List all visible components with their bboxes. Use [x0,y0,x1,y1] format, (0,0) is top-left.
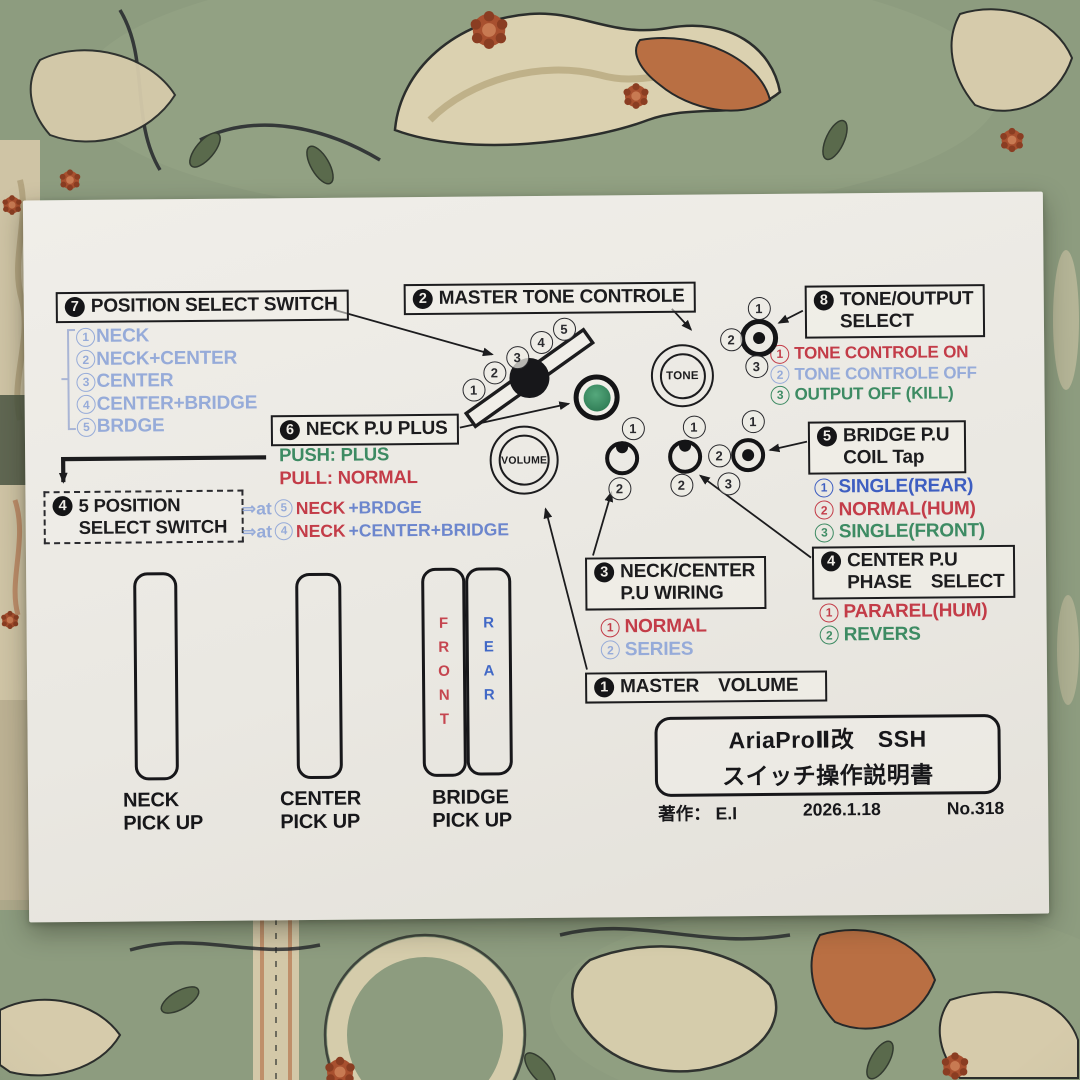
list-item: 2NORMAL(HUM) [815,498,985,522]
position-select-options: 1NECK 2NECK+CENTER 3CENTER 4CENTER+BRIDG… [76,324,257,438]
output-knob-marker: 2 [720,328,743,351]
section-title-line2: SELECT SWITCH [79,516,233,539]
section-number: 2 [413,289,433,309]
photo-scene: 7POSITION SELECT SWITCH 2MASTER TONE CON… [0,0,1080,1080]
list-item: 1NORMAL [601,616,707,639]
push-note: PUSH: PLUS [279,443,418,467]
tone-knob-cap: TONE [659,353,705,399]
arrow-coil-to-knob [770,442,807,450]
section-box-tone-output: 8TONE/OUTPUT SELECT [805,284,985,339]
section-number: 4 [52,496,72,516]
coil-knob-marker: 3 [717,472,740,495]
switch-position-marker: 2 [483,361,506,384]
pickup-center [295,573,343,779]
phase-knob-marker: 1 [682,415,705,438]
arrow-wiring-to-knob [592,492,612,555]
switch-position-marker: 5 [552,317,575,340]
pickup-label-bridge: BRIDGEPICK UP [432,786,512,833]
list-item: 1SINGLE(REAR) [814,475,984,499]
circled-number: 2 [76,350,95,369]
section-title: TONE/OUTPUT [840,288,974,311]
wiring-knob-marker: 2 [608,477,631,500]
arrow-tone-output-to-knob [779,311,803,323]
bridge-rear-label: REAR [480,614,498,710]
center-phase-options: 1PARAREL(HUM) 2REVERS [819,600,987,646]
title-box: AriaProⅡ改 SSH スイッチ操作説明書 [654,714,1001,797]
credit-date: 2026.1.18 [803,799,881,825]
bridge-coil-tap-knob [730,438,764,472]
section-box-master-tone: 2MASTER TONE CONTROLE [404,282,696,316]
note-at4: ⇒at4 NECK+CENTER+BRIDGE [242,518,509,543]
section-box-five-position: 45 POSITION SELECT SWITCH [43,490,243,545]
volume-knob: VOLUME [489,425,559,495]
tone-output-options: 1TONE CONTROLE ON 2TONE CONTROLE OFF 3OU… [770,342,977,405]
circled-number: 5 [77,418,96,437]
list-item: 2REVERS [820,623,988,647]
tone-output-select-knob [740,319,778,357]
center-phase-knob [667,439,701,473]
list-item: 2SERIES [601,638,707,661]
knob-center-dot [742,449,754,461]
section-title-line2: PHASE SELECT [847,571,1004,594]
circled-number: 2 [770,365,789,384]
arrow-volume-box-to-knob [546,509,587,670]
list-item: 2NECK+CENTER [76,347,257,371]
switch-position-marker: 3 [506,346,529,369]
circled-number: 5 [275,499,293,517]
credit-author: 著作： E.I [658,800,737,826]
neck-pu-plus-notes: ⇒at5 NECK+BRDGE ⇒at4 NECK+CENTER+BRIDGE [241,495,509,542]
circled-number: 3 [815,523,834,542]
list-item: 1NECK [76,324,257,348]
section-title: NECK P.U PLUS [306,418,448,441]
arrow-position-select-to-switch [334,308,492,355]
section-title: BRIDGE P.U [843,424,950,447]
list-item: 1PARAREL(HUM) [819,600,987,624]
pull-note: PULL: NORMAL [279,466,418,490]
credit-line: 著作： E.I 2026.1.18 No.318 [658,798,1004,826]
note-at5: ⇒at5 NECK+BRDGE [241,495,508,520]
section-number: 8 [814,290,834,310]
circled-number: 2 [815,501,834,520]
list-item: 2TONE CONTROLE OFF [770,363,977,385]
coil-knob-marker: 1 [741,410,764,433]
neck-pu-plus-push-pull: PUSH: PLUS PULL: NORMAL [279,443,418,489]
output-knob-marker: 3 [745,354,768,377]
list-item: 1TONE CONTROLE ON [770,342,977,364]
wiring-options: 1NORMAL 2SERIES [601,616,708,662]
neck-center-wiring-knob [604,441,638,475]
volume-knob-cap: VOLUME [498,434,549,485]
coil-knob-marker: 2 [708,444,731,467]
section-number: 4 [821,551,841,571]
instruction-sheet: 7POSITION SELECT SWITCH 2MASTER TONE CON… [23,192,1049,923]
section-title: 5 POSITION [78,494,180,517]
switch-position-marker: 1 [462,378,485,401]
circled-number: 3 [771,386,790,405]
circled-number: 2 [820,626,839,645]
section-number: 5 [817,426,837,446]
pickup-neck [133,572,179,780]
section-title-line2: COIL Tap [843,446,955,469]
section-title: MASTER VOLUME [620,675,798,699]
circled-number: 4 [77,395,96,414]
section-title: MASTER TONE CONTROLE [439,286,685,310]
list-item: 5BRDGE [77,414,258,438]
bridge-coil-options: 1SINGLE(REAR) 2NORMAL(HUM) 3SINGLE(FRONT… [814,475,985,544]
list-item: 3SINGLE(FRONT) [815,520,985,544]
output-knob-marker: 1 [747,296,770,319]
section-number: 1 [594,677,614,697]
section-box-master-volume: 1MASTER VOLUME [585,670,827,703]
knob-notch [678,439,690,451]
tone-knob-label: TONE [666,370,699,382]
list-item: 3CENTER [76,369,257,393]
bracket-position-list [61,330,76,429]
wiring-knob-marker: 1 [621,417,644,440]
circled-number: 1 [814,478,833,497]
circled-number: 2 [601,641,620,660]
section-title: NECK/CENTER [620,560,755,583]
volume-knob-label: VOLUME [501,454,547,466]
tone-knob: TONE [651,344,715,408]
circled-number: 1 [601,618,620,637]
circled-number: 4 [275,522,293,540]
circled-number: 1 [76,328,95,347]
section-title: POSITION SELECT SWITCH [91,294,338,318]
arrow-neck-pu-plus-to-button [460,404,569,428]
phase-knob-marker: 2 [670,473,693,496]
section-number: 7 [65,297,85,317]
green-button-cap [583,384,610,411]
section-box-center-phase: 4CENTER P.U PHASE SELECT [812,545,1016,600]
pickup-label-neck: NECKPICK UP [123,789,203,836]
bridge-front-label: FRONT [435,615,453,735]
pickup-bridge-front: FRONT [421,568,467,777]
section-box-bridge-coil: 5BRIDGE P.U COIL Tap [808,420,966,474]
list-item: 4CENTER+BRIDGE [77,392,258,416]
pickup-label-center: CENTERPICK UP [280,788,361,835]
section-title-line2: SELECT [840,310,974,333]
section-number: 6 [280,420,300,440]
circled-number: 1 [819,603,838,622]
section-box-neck-pu-plus: 6NECK P.U PLUS [271,414,459,447]
list-item: 3OUTPUT OFF (KILL) [771,383,978,405]
title-line2: スイッチ操作説明書 [722,756,934,792]
knob-notch [615,441,627,453]
pickup-bridge-rear: REAR [465,567,513,775]
section-number: 3 [594,562,614,582]
section-box-neck-center-wiring: 3NECK/CENTER P.U WIRING [585,556,766,611]
switch-position-marker: 4 [530,330,553,353]
section-title-line2: P.U WIRING [620,582,755,605]
neck-pu-plus-button [573,374,619,420]
arrow-elbow-to-five-position [63,457,266,482]
title-line1: AriaProⅡ改 SSH [728,720,926,756]
section-box-position-select: 7POSITION SELECT SWITCH [56,290,349,324]
knob-center-dot [753,332,765,344]
circled-number: 3 [76,373,95,392]
section-title: CENTER P.U [847,549,958,572]
credit-number: No.318 [947,798,1005,823]
